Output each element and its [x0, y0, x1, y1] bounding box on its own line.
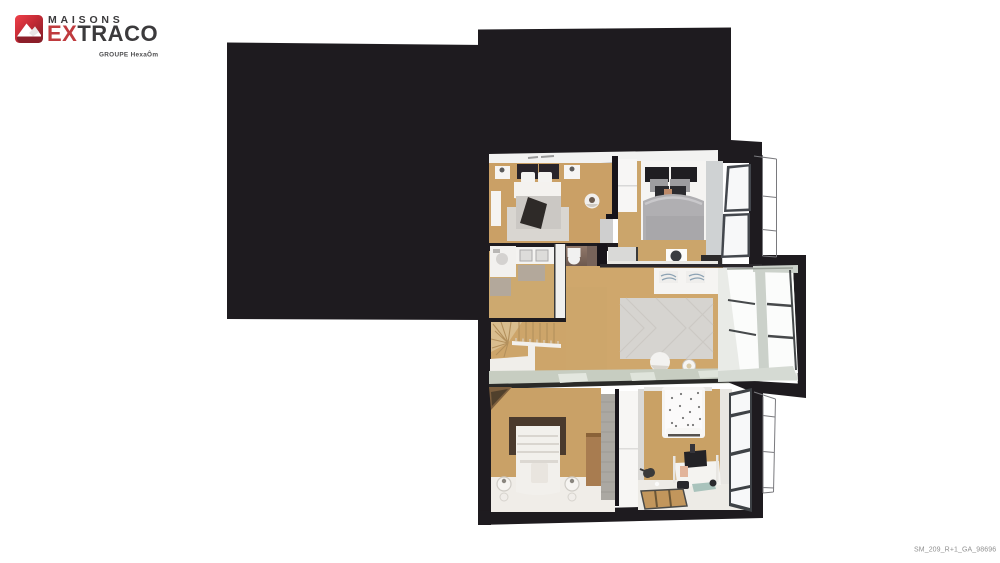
- svg-text:GROUPE HexaÔm: GROUPE HexaÔm: [99, 50, 158, 59]
- svg-text:SM_209_R+1_GA_98696: SM_209_R+1_GA_98696: [914, 547, 996, 554]
- svg-text:EXTRACO: EXTRACO: [47, 21, 158, 46]
